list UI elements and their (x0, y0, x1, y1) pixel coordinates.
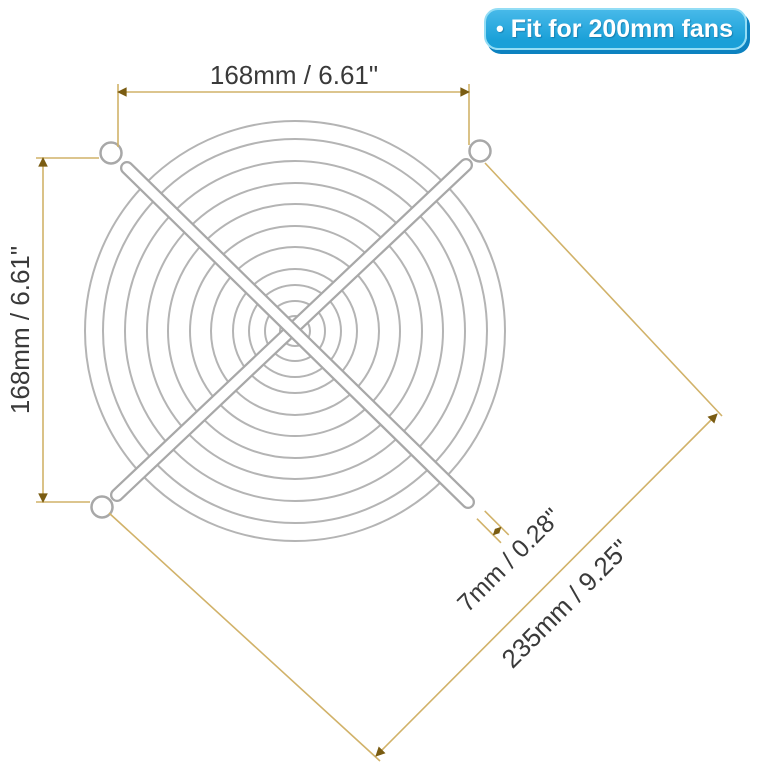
extension-line (485, 163, 722, 416)
fit-callout-label: Fit for 200mm fans (511, 15, 733, 44)
bullet-icon: • (496, 18, 504, 40)
grill-cross-brace (117, 165, 468, 502)
width-dimension-label: 168mm / 6.61" (210, 60, 378, 90)
height-dimension-label: 168mm / 6.61" (5, 246, 35, 414)
extension-line (109, 513, 380, 761)
product-image: 168mm / 6.61" 168mm / 6.61" 235mm / 9.25… (0, 0, 768, 768)
wire-thickness-dimension (477, 511, 509, 543)
dimension-line-wire (493, 527, 501, 535)
mount-ring-top-right (470, 141, 491, 162)
fan-guard-dimension-diagram: 168mm / 6.61" 168mm / 6.61" 235mm / 9.25… (0, 0, 768, 768)
fit-callout-badge: • Fit for 200mm fans (484, 8, 747, 50)
